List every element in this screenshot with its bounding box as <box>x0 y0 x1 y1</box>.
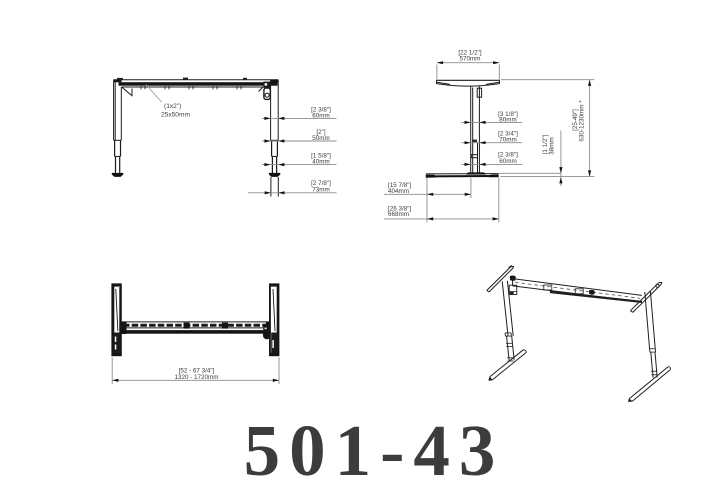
svg-text:570mm: 570mm <box>460 55 481 62</box>
svg-text:40mm: 40mm <box>312 158 330 165</box>
svg-text:(1x2"): (1x2") <box>164 103 181 110</box>
svg-text:70mm: 70mm <box>499 137 517 144</box>
svg-text:630-1230mm *: 630-1230mm * <box>578 100 585 142</box>
svg-text:1320 - 1720mm: 1320 - 1720mm <box>174 374 218 381</box>
svg-text:404mm: 404mm <box>388 188 409 195</box>
svg-text:60mm: 60mm <box>499 158 517 165</box>
svg-text:38mm: 38mm <box>548 137 555 155</box>
svg-text:668mm: 668mm <box>388 211 409 218</box>
svg-text:501-43: 501-43 <box>244 410 505 491</box>
svg-text:73mm: 73mm <box>312 187 330 194</box>
svg-text:25x50mm: 25x50mm <box>161 112 190 119</box>
svg-text:50mm: 50mm <box>312 135 330 142</box>
svg-text:80mm: 80mm <box>499 116 517 123</box>
svg-text:60mm: 60mm <box>312 112 330 119</box>
